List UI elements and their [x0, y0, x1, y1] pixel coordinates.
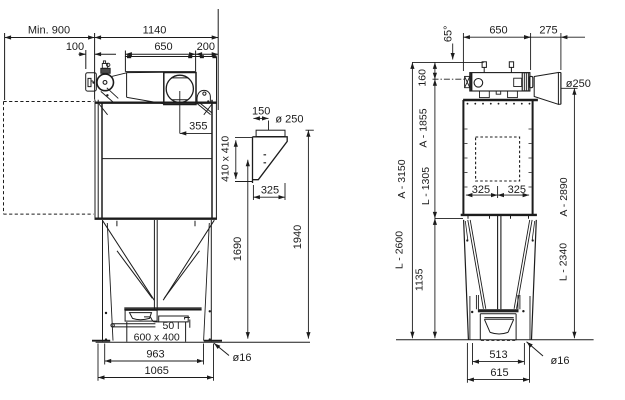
svg-text:ø16: ø16	[233, 352, 252, 364]
svg-text:1065: 1065	[144, 365, 168, 377]
svg-text:L - 1305: L - 1305	[420, 167, 432, 205]
svg-text:325: 325	[261, 185, 279, 197]
svg-text:1140: 1140	[143, 25, 167, 37]
svg-text:160: 160	[416, 69, 428, 87]
svg-text:275: 275	[539, 24, 557, 36]
svg-text:325: 325	[508, 184, 526, 196]
svg-text:1135: 1135	[414, 268, 426, 291]
svg-text:L - 2340: L - 2340	[557, 243, 569, 281]
svg-text:615: 615	[490, 367, 508, 379]
svg-text:1940: 1940	[292, 225, 304, 249]
svg-text:A - 1855: A - 1855	[418, 108, 430, 147]
svg-text:325: 325	[472, 184, 490, 196]
svg-text:A - 3150: A - 3150	[396, 159, 408, 198]
svg-text:50 l: 50 l	[163, 320, 180, 332]
svg-text:200: 200	[197, 41, 215, 53]
svg-text:1690: 1690	[232, 237, 244, 261]
svg-text:Min. 900: Min. 900	[28, 25, 70, 37]
svg-text:355: 355	[189, 121, 207, 133]
svg-text:150: 150	[252, 105, 270, 117]
svg-text:650: 650	[489, 24, 507, 36]
svg-text:65°: 65°	[443, 25, 455, 42]
svg-text:410 x 410: 410 x 410	[219, 136, 231, 182]
svg-text:963: 963	[146, 348, 164, 360]
svg-text:L - 2600: L - 2600	[393, 231, 405, 269]
svg-text:ø 250: ø 250	[275, 114, 303, 126]
svg-text:650: 650	[154, 41, 172, 53]
svg-text:ø16: ø16	[551, 355, 570, 367]
svg-text:513: 513	[489, 349, 507, 361]
svg-text:A - 2890: A - 2890	[558, 177, 570, 216]
svg-text:100: 100	[66, 41, 84, 53]
